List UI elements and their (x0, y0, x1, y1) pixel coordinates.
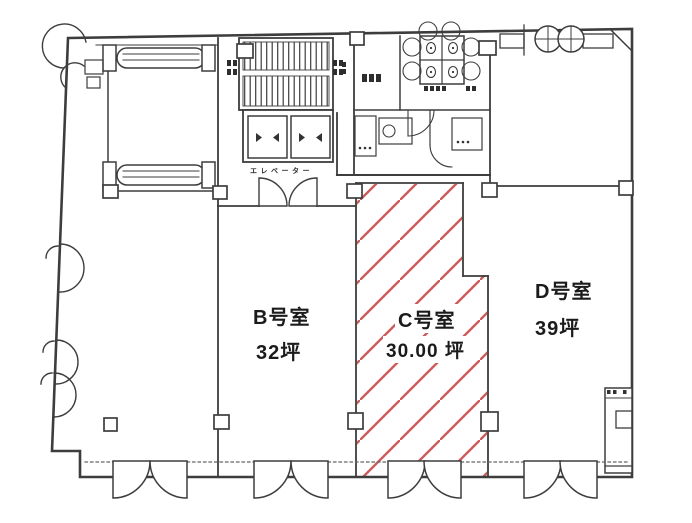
pipe-shaft (605, 388, 632, 473)
elevator-icon (243, 110, 333, 162)
room-c-area-label: 30.00 坪 (383, 336, 468, 363)
left-wall-door-arcs (41, 24, 86, 417)
floor-plan-canvas: B号室 32坪 C号室 30.00 坪 D号室 39坪 エレベーター (0, 0, 692, 523)
floor-plan-drawing (0, 0, 692, 523)
outer-wall (52, 29, 632, 477)
restroom-area (354, 22, 490, 167)
elevator-hall-label: エレベーター (250, 166, 313, 176)
room-b-name-label: B号室 (253, 301, 310, 330)
room-c-name-label: C号室 (395, 304, 458, 333)
room-d-area-label: 39坪 (535, 312, 580, 341)
bottom-entrance-doors (113, 461, 597, 498)
room-d-name-label: D号室 (535, 275, 592, 304)
escalator-icon (85, 45, 215, 188)
room-b-area-label: 32坪 (256, 336, 301, 365)
double-door-icon (259, 178, 317, 206)
kitchenette-fixtures (355, 110, 482, 167)
